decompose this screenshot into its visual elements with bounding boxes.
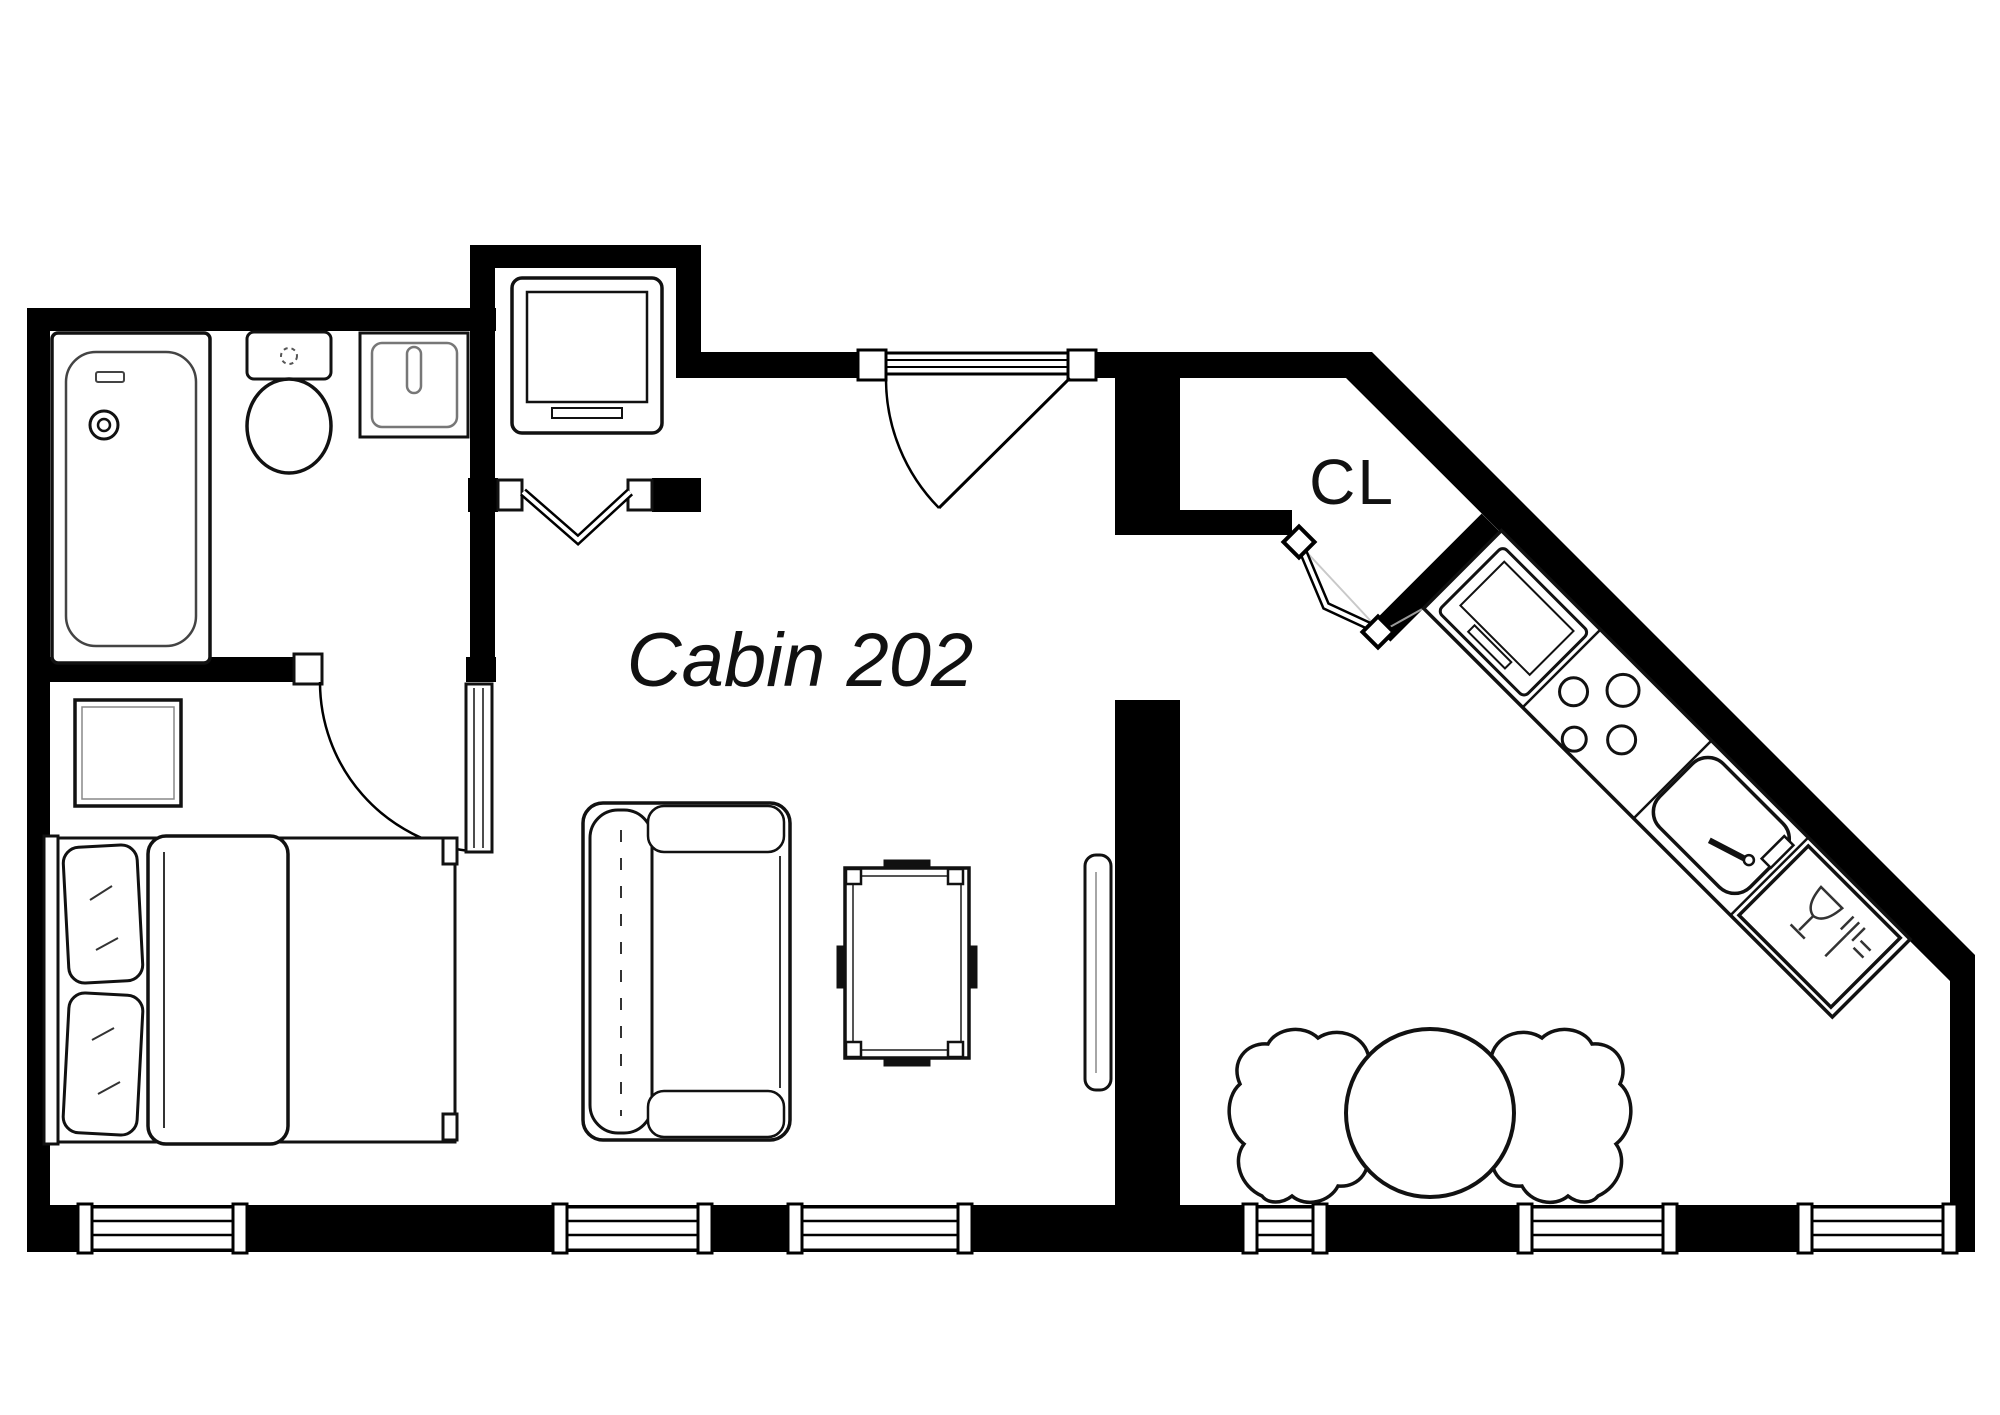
utility-bifold-door — [498, 480, 652, 540]
window-6 — [1798, 1204, 1957, 1253]
wall-closet-stub — [1180, 510, 1292, 535]
wall-closet-left — [1115, 378, 1180, 535]
bathtub — [52, 333, 210, 663]
living-area — [583, 803, 1111, 1140]
sofa-arm-top — [648, 806, 784, 852]
toilet — [247, 332, 331, 473]
entry-door-arc — [886, 378, 939, 508]
wall-bottom — [27, 1205, 1975, 1252]
sofa — [583, 803, 790, 1140]
window-3 — [788, 1204, 972, 1253]
wall-top-a — [676, 352, 860, 378]
trunk-handle-bottom — [884, 1057, 930, 1066]
wall-tv — [1085, 855, 1111, 1090]
wall-top-b — [1094, 352, 1362, 378]
headboard — [44, 836, 58, 1144]
trunk-coffee-table — [837, 860, 977, 1066]
entry-door-leaf — [939, 378, 1070, 508]
entry-door-jamb-left — [858, 350, 886, 380]
utility-closet — [498, 278, 662, 540]
trunk-handle-left — [837, 946, 846, 988]
sleeping-area — [44, 700, 457, 1144]
trunk-handle-top — [884, 860, 930, 869]
double-bed — [44, 836, 457, 1144]
washer-unit — [512, 278, 662, 433]
window-5 — [1518, 1204, 1677, 1253]
sofa-arm-bottom — [648, 1091, 784, 1137]
floor-plan-canvas: Cabin 202 CL — [0, 0, 2000, 1415]
dining-set — [1229, 1029, 1631, 1202]
window-4 — [1243, 1204, 1327, 1253]
bedpost-top — [443, 838, 457, 864]
floor-plan: Cabin 202 CL — [0, 0, 2000, 1415]
bathroom-swing-door — [294, 654, 492, 852]
window-2 — [553, 1204, 712, 1253]
wall-partition — [1115, 700, 1180, 1205]
wall-utility-left — [470, 245, 495, 682]
blanket — [148, 836, 288, 1144]
nightstand — [75, 700, 181, 806]
entry-door-jamb-right — [1068, 350, 1096, 380]
trunk-handle-right — [968, 946, 977, 988]
closet-bifold-door — [1283, 526, 1424, 647]
wall-bathroom-top — [27, 308, 496, 331]
wall-utility-jamb-right — [652, 478, 701, 512]
bedpost-bottom — [443, 1114, 457, 1140]
closet-label: CL — [1309, 446, 1395, 518]
entry-swing-door — [858, 350, 1096, 508]
cabin-title: Cabin 202 — [627, 618, 974, 703]
round-dining-table — [1346, 1029, 1514, 1197]
window-1 — [78, 1204, 247, 1253]
wall-utility-jamb-left — [468, 478, 498, 512]
wall-utility-top — [470, 245, 701, 268]
kitchen — [1424, 531, 1910, 1017]
bathroom-sink — [360, 333, 468, 437]
